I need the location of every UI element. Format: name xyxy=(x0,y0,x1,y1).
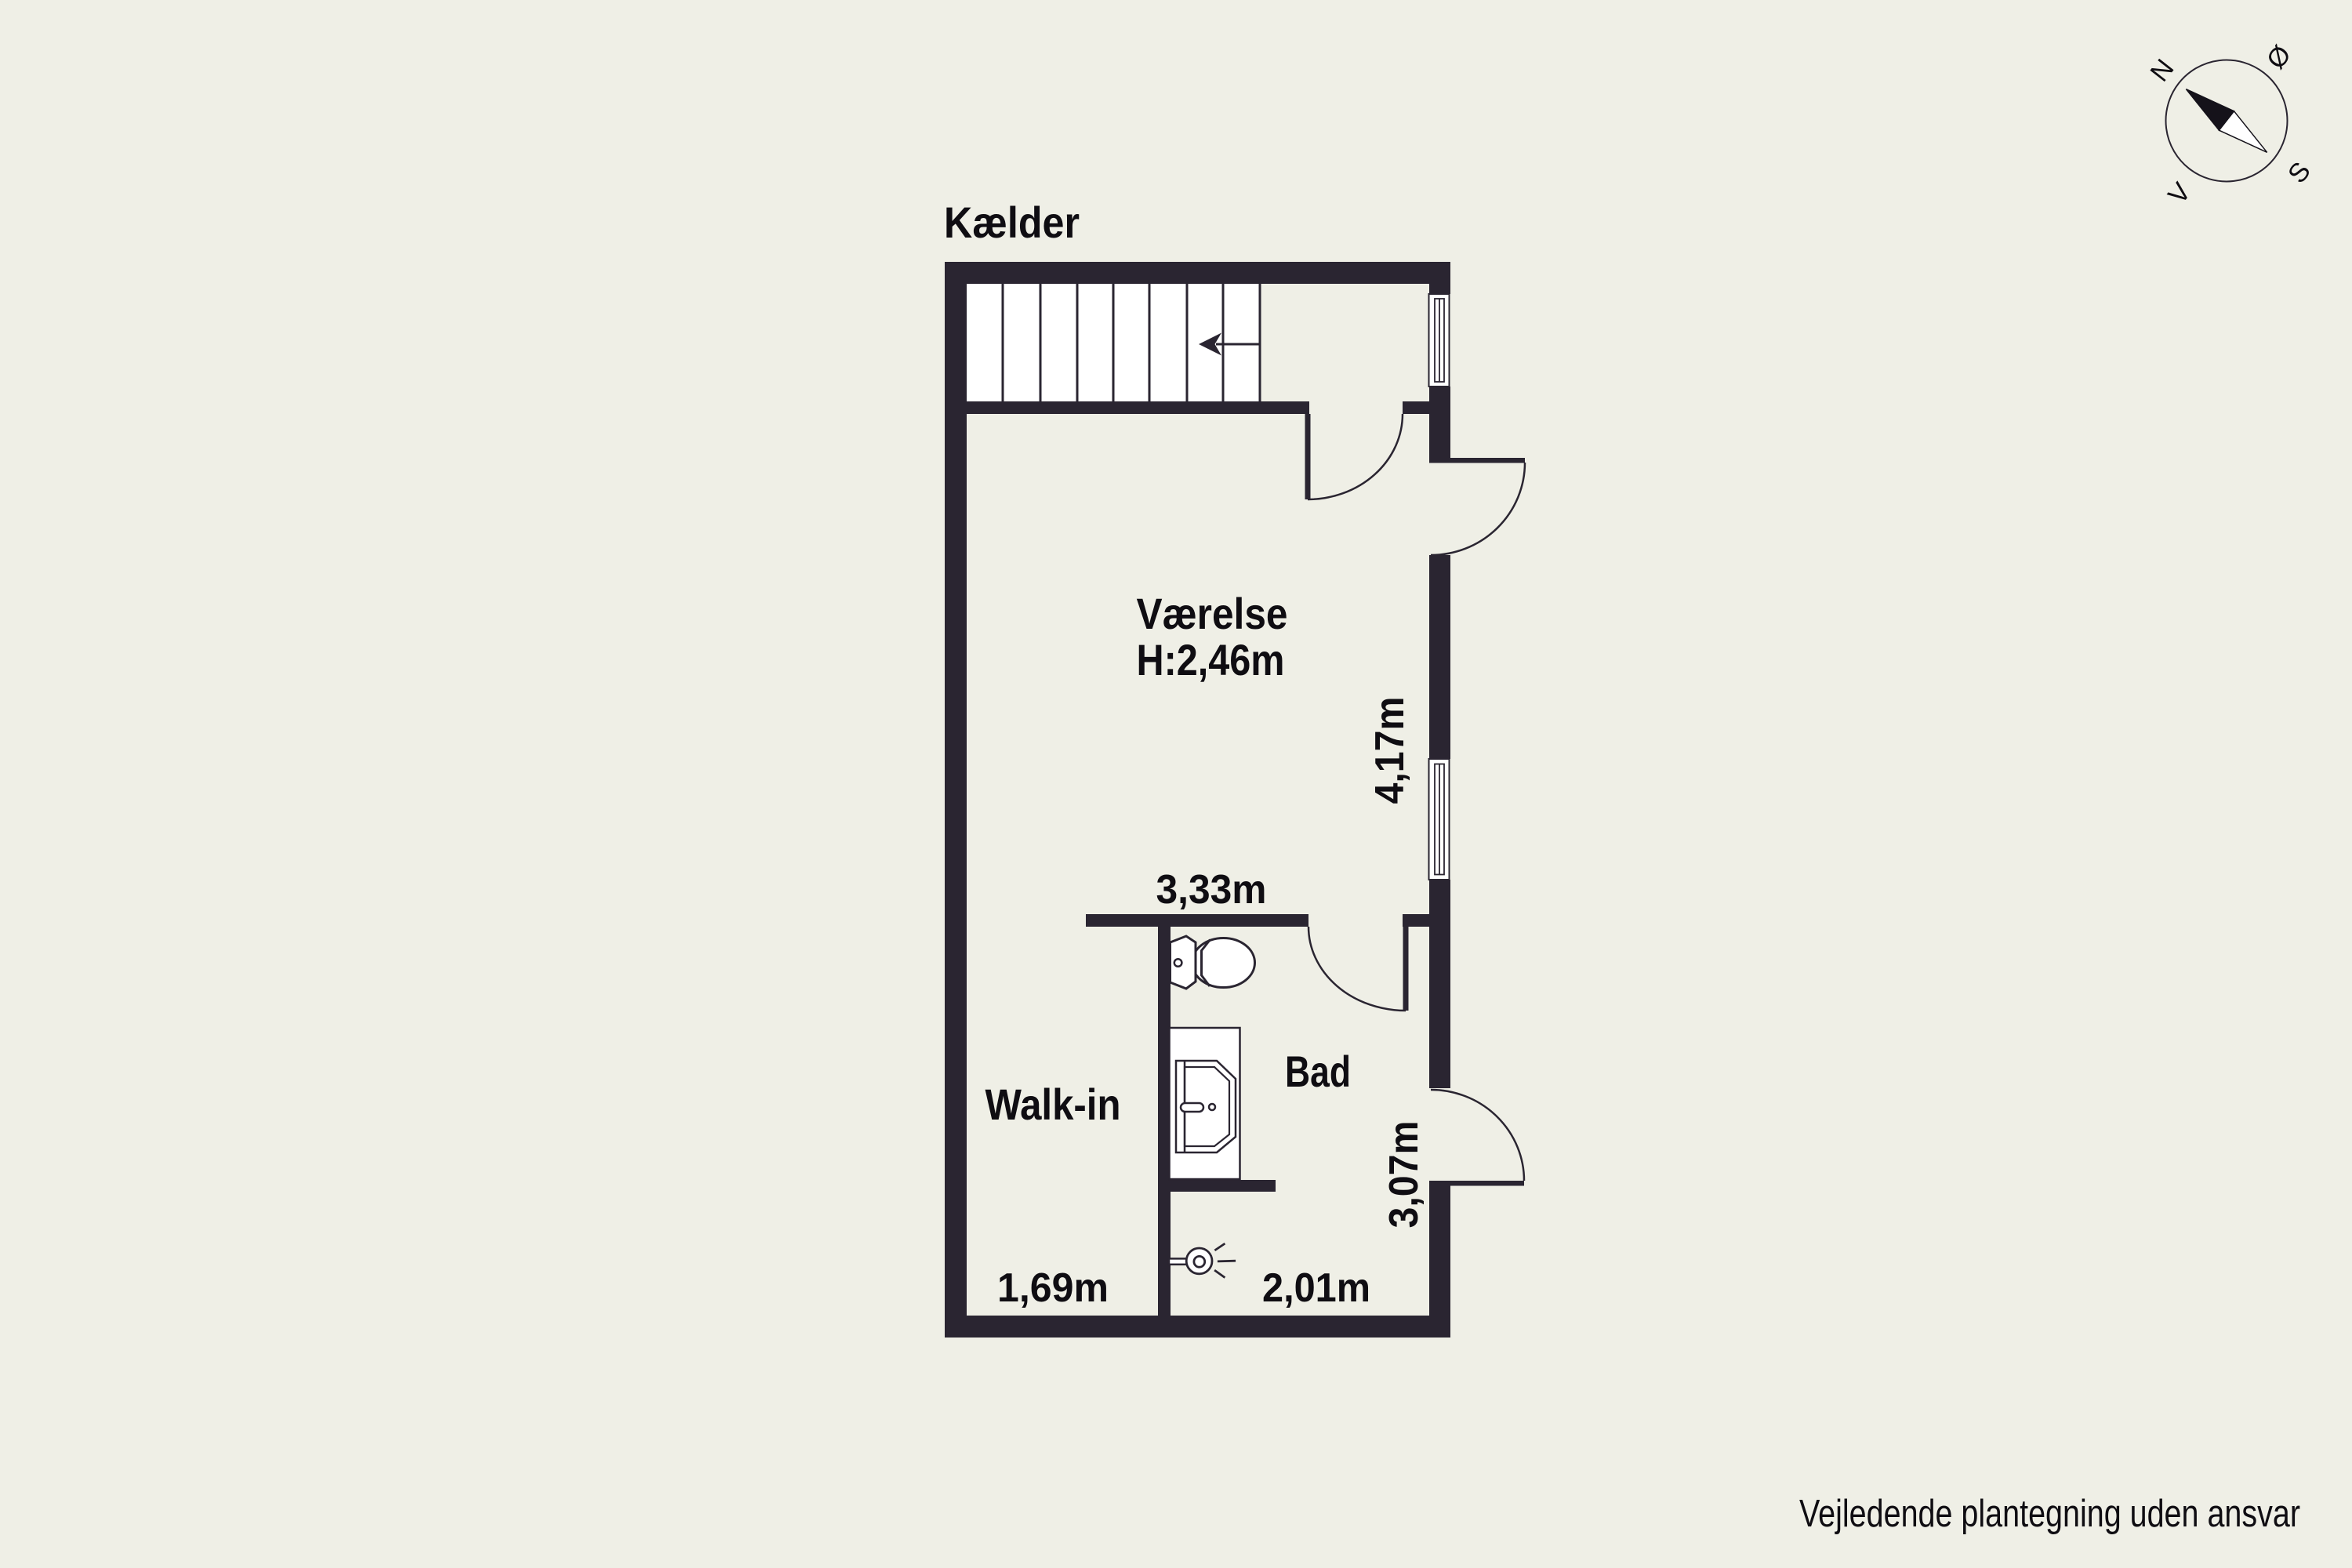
svg-text:4,17m: 4,17m xyxy=(1367,697,1413,804)
svg-text:3,07m: 3,07m xyxy=(1381,1121,1427,1229)
svg-text:H:2,46m: H:2,46m xyxy=(1137,635,1285,684)
svg-text:2,01m: 2,01m xyxy=(1262,1265,1370,1311)
svg-text:Værelse: Værelse xyxy=(1137,589,1288,638)
svg-text:1,69m: 1,69m xyxy=(997,1265,1109,1311)
svg-text:Vejledende plantegning uden an: Vejledende plantegning uden ansvar xyxy=(1799,1493,2300,1535)
svg-text:Bad: Bad xyxy=(1285,1047,1351,1096)
svg-text:3,33m: 3,33m xyxy=(1156,867,1267,913)
svg-text:Walk-in: Walk-in xyxy=(985,1080,1121,1129)
svg-text:Kælder: Kælder xyxy=(944,198,1080,247)
